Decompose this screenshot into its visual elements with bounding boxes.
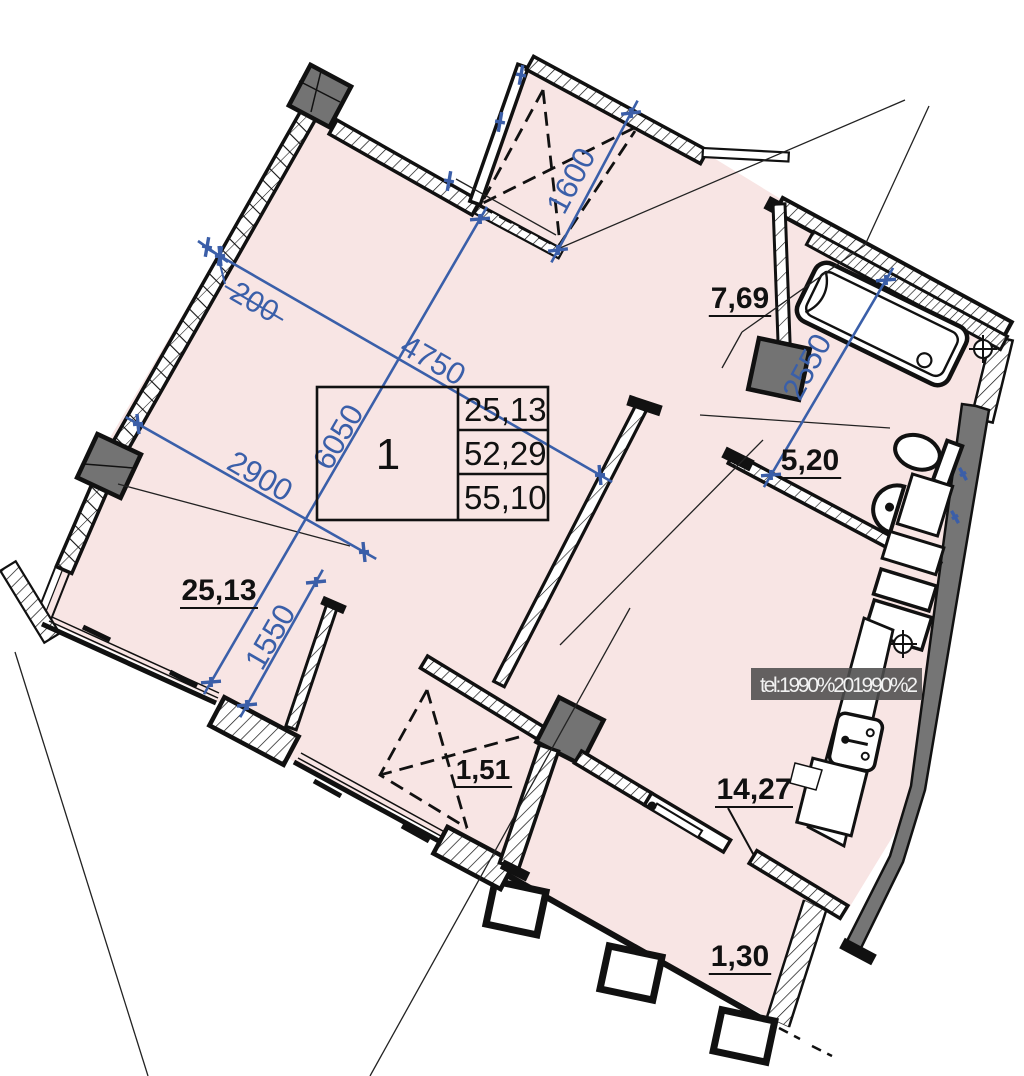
svg-text:52,29: 52,29 — [464, 435, 547, 472]
svg-text:tel:1990%201990%2: tel:1990%201990%2 — [760, 674, 918, 697]
svg-text:1,30: 1,30 — [711, 940, 769, 973]
svg-text:55,10: 55,10 — [464, 479, 547, 516]
svg-text:7,69: 7,69 — [711, 282, 769, 315]
svg-text:14,27: 14,27 — [716, 773, 791, 806]
svg-text:1,51: 1,51 — [456, 754, 511, 785]
svg-text:25,13: 25,13 — [464, 391, 547, 428]
svg-text:25,13: 25,13 — [181, 574, 256, 607]
svg-text:5,20: 5,20 — [781, 444, 839, 477]
svg-text:1: 1 — [376, 430, 400, 479]
